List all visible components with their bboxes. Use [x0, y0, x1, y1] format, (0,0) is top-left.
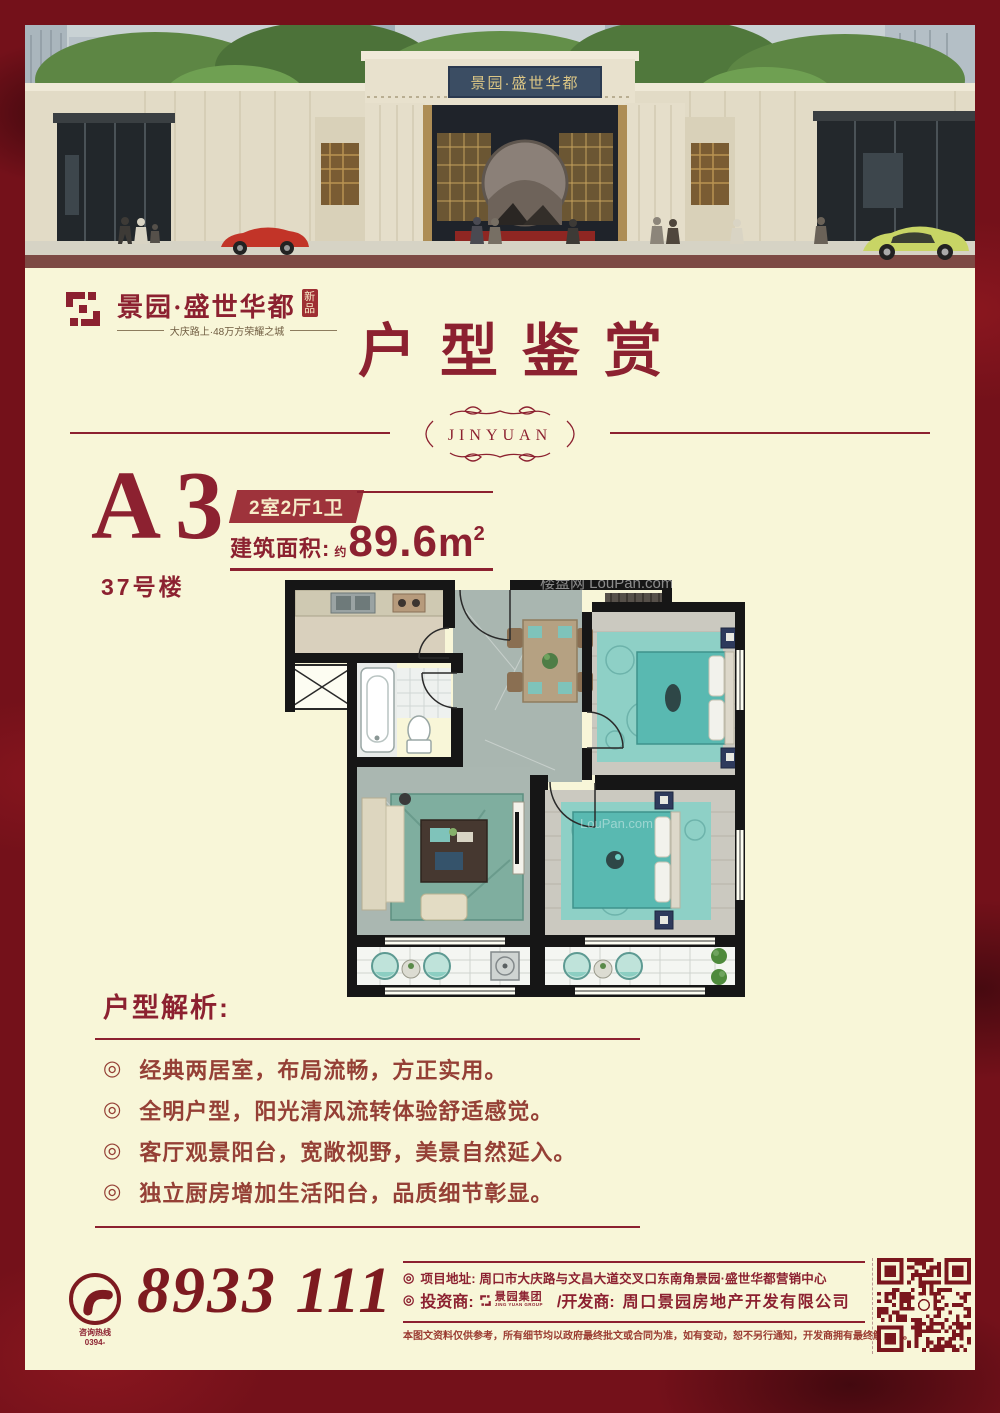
brand-new-badge: 新品: [302, 289, 318, 317]
analysis-heading: 户型解析:: [103, 986, 230, 1025]
page-title: 户型鉴赏: [358, 304, 686, 388]
watermark-mid: LouPan.com: [580, 816, 653, 831]
tagline-line-left: [117, 330, 164, 331]
area-value: 89.6: [348, 517, 438, 567]
floor-plan: 楼盘网 LouPan.com LouPan.com: [285, 580, 745, 1005]
area-unit: m: [438, 521, 474, 566]
address-value: 周口市大庆路与文昌大道交叉口东南角景园·盛世华都营销中心: [479, 1268, 826, 1287]
analysis-item: ◎ 全明户型，阳光清风流转体验舒适感觉。: [103, 1089, 663, 1130]
info-rule-top: [403, 1261, 865, 1263]
divider-line-left: [70, 432, 390, 434]
bullet-icon: ◎: [403, 1270, 415, 1286]
moon-sculpture: [483, 141, 567, 225]
storefront-right: [813, 111, 975, 243]
bullet-icon: ◎: [103, 1179, 121, 1204]
poster-frame: 景园·盛世华都: [0, 0, 1000, 1413]
unit-building: 37号楼: [101, 568, 185, 602]
bedroom1-furniture: [597, 628, 739, 768]
bullet-icon: ◎: [103, 1056, 121, 1081]
bathtub: [361, 668, 394, 752]
developer-value: 周口景园房地产开发有限公司: [623, 1288, 851, 1312]
road-strip: [25, 255, 975, 268]
phone-icon: [67, 1271, 123, 1327]
bullet-icon: ◎: [403, 1292, 414, 1308]
toilet: [407, 716, 431, 753]
analysis-rule-top: [95, 1038, 640, 1040]
divider-line-right: [610, 432, 930, 434]
investor-developer-row: ◎ 投资商: 景园集团 JING YUAN GROUP /开发商: 周口景园房地…: [403, 1288, 868, 1312]
area-superscript: 2: [474, 523, 485, 546]
storefront-left: [53, 113, 175, 241]
equipment-platform: [288, 665, 356, 709]
brand-tagline: 大庆路上·48万方荣耀之城: [117, 323, 337, 338]
watermark-top: 楼盘网 LouPan.com: [540, 580, 673, 592]
kitchen-stove: [393, 594, 425, 612]
analysis-item: ◎ 客厅观景阳台，宽敞视野，美景自然延入。: [103, 1130, 663, 1171]
brand-name-row: 景园·盛世华都 新品: [117, 287, 318, 324]
area-underline: [230, 568, 493, 571]
tagline-line-right: [290, 330, 337, 331]
qr-divider: [872, 1258, 873, 1354]
hotline-label: 咨询热线 0394-: [59, 1328, 131, 1348]
unit-layout-text: 2室2厅1卫: [249, 493, 344, 520]
bullet-icon: ◎: [103, 1138, 121, 1163]
project-address-row: ◎ 项目地址: 周口市大庆路与文昌大道交叉口东南角景园·盛世华都营销中心: [403, 1268, 868, 1287]
info-rule-bottom: [403, 1321, 865, 1323]
jinyuan-ornament: JINYUAN: [395, 401, 605, 467]
balcony-left-furniture: [372, 952, 519, 980]
gate-plaque-text: 景园·盛世华都: [471, 75, 580, 92]
investor-label: 投资商:: [420, 1288, 473, 1312]
investor-logo: 景园集团 JING YUAN GROUP: [478, 1292, 543, 1308]
tagline-text: 大庆路上·48万方荣耀之城: [170, 323, 284, 338]
poster-panel: 景园·盛世华都: [25, 25, 975, 1370]
area-approx: 约: [334, 543, 346, 560]
investor-logo-text: 景园集团 JING YUAN GROUP: [495, 1292, 543, 1308]
qr-code: [877, 1258, 971, 1352]
analysis-item: ◎ 经典两居室，布局流畅，方正实用。: [103, 1048, 663, 1089]
analysis-item: ◎ 独立厨房增加生活阳台，品质细节彰显。: [103, 1171, 663, 1212]
developer-label: /开发商:: [557, 1288, 615, 1312]
phone-number: 8933 111: [137, 1253, 393, 1329]
bedroom2-furniture: [561, 792, 711, 929]
brand-name: 景园·盛世华都: [117, 287, 296, 324]
disclaimer-text: 本图文资料仅供参考，所有细节均以政府最终批文或合同为准，如有变动，恕不另行通知，…: [403, 1327, 868, 1342]
investor-logo-icon: [478, 1293, 493, 1308]
badge-accent-line: [357, 491, 493, 493]
area-label: 建筑面积:: [230, 531, 330, 563]
analysis-list: ◎ 经典两居室，布局流畅，方正实用。 ◎ 全明户型，阳光清风流转体验舒适感觉。 …: [103, 1048, 663, 1212]
area-row: 建筑面积: 约 89.6 m 2: [230, 517, 485, 567]
ornament-text: JINYUAN: [448, 427, 552, 444]
living-room-furniture: [362, 793, 524, 920]
analysis-rule-bottom: [95, 1226, 640, 1228]
brand-logo-icon: [59, 285, 107, 333]
address-label: 项目地址:: [421, 1268, 476, 1287]
hero-photo: 景园·盛世华都: [25, 25, 975, 268]
unit-code: A3: [91, 457, 238, 554]
bullet-icon: ◎: [103, 1097, 121, 1122]
